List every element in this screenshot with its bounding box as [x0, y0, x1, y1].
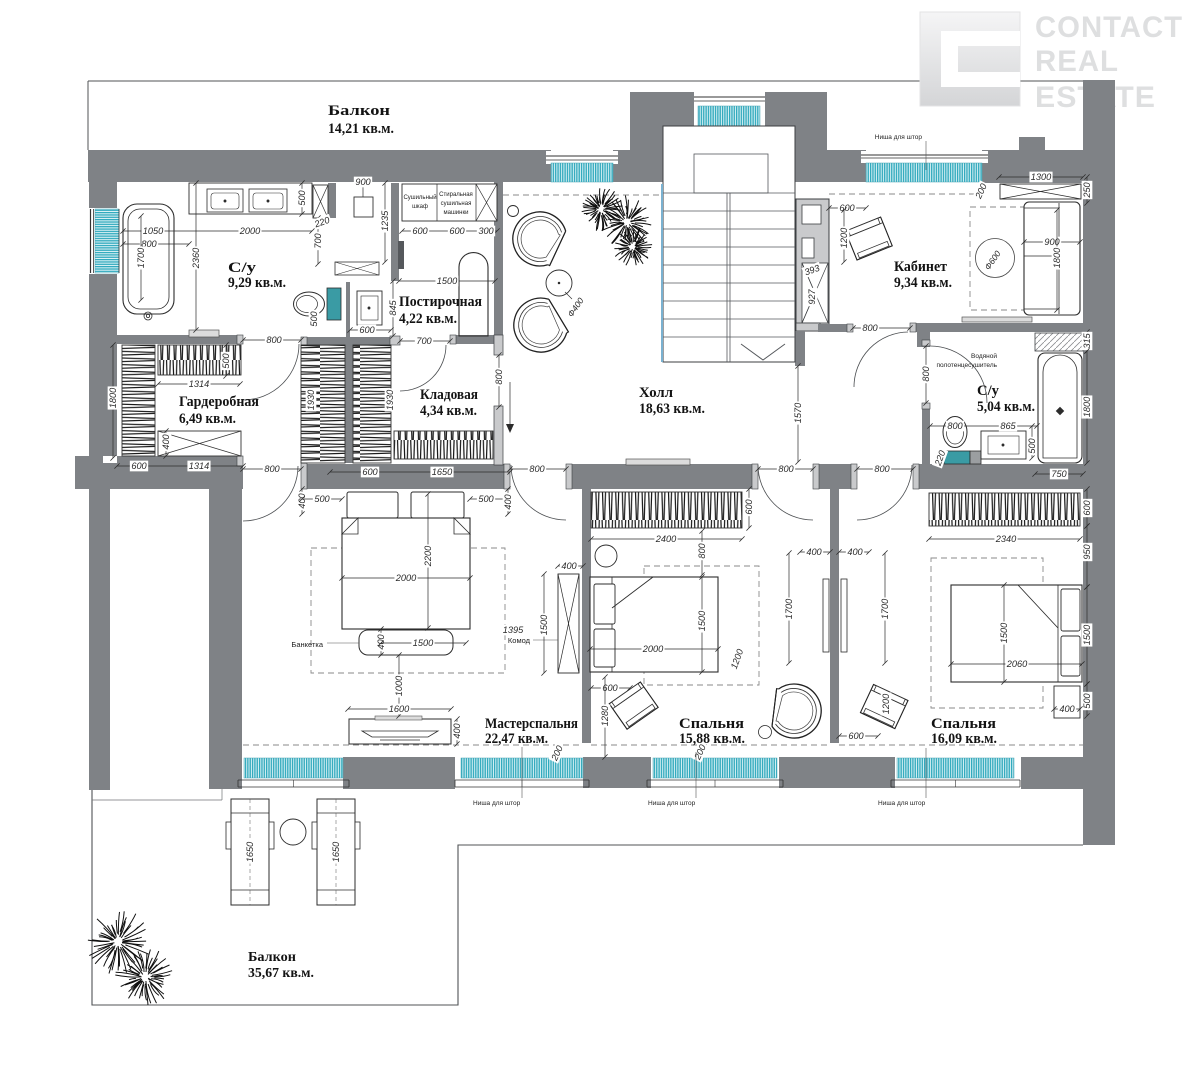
svg-text:5,04 кв.м.: 5,04 кв.м. [977, 399, 1035, 415]
svg-text:1200: 1200 [729, 647, 746, 670]
svg-text:800: 800 [529, 464, 545, 474]
svg-text:2400: 2400 [655, 534, 677, 544]
svg-text:1800: 1800 [108, 387, 118, 408]
svg-text:1200: 1200 [839, 227, 849, 248]
svg-text:1700: 1700 [784, 598, 794, 619]
svg-text:14,21 кв.м.: 14,21 кв.м. [328, 121, 394, 137]
svg-text:500: 500 [1082, 692, 1092, 708]
svg-text:400: 400 [161, 433, 171, 449]
svg-text:2000: 2000 [395, 573, 417, 583]
svg-text:800: 800 [697, 542, 707, 558]
svg-text:800: 800 [874, 464, 890, 474]
svg-text:800: 800 [494, 368, 504, 384]
svg-text:CONTACT: CONTACT [1035, 11, 1183, 44]
svg-text:Кабинет: Кабинет [894, 259, 948, 275]
svg-text:Ниша для штор: Ниша для штор [878, 800, 926, 807]
svg-text:Ф400: Ф400 [565, 296, 585, 319]
svg-text:1700: 1700 [880, 598, 890, 619]
svg-text:400: 400 [847, 547, 863, 557]
svg-text:1500: 1500 [437, 276, 458, 286]
svg-text:Сушильный: Сушильный [403, 194, 436, 201]
svg-text:REAL: REAL [1035, 45, 1119, 78]
svg-text:1700: 1700 [136, 247, 146, 268]
svg-text:1570: 1570 [793, 402, 803, 423]
svg-text:600: 600 [362, 467, 378, 477]
svg-text:Банкетка: Банкетка [291, 640, 323, 649]
svg-text:900: 900 [1044, 237, 1060, 247]
svg-text:С/у: С/у [977, 383, 999, 399]
svg-text:машинки: машинки [444, 210, 469, 216]
svg-text:600: 600 [359, 325, 375, 335]
svg-text:400: 400 [376, 633, 386, 649]
svg-text:1500: 1500 [999, 622, 1009, 643]
svg-text:600: 600 [744, 498, 754, 514]
svg-text:18,63 кв.м.: 18,63 кв.м. [639, 401, 705, 417]
svg-text:750: 750 [1051, 469, 1067, 479]
svg-text:Стиральная: Стиральная [439, 192, 473, 198]
svg-text:Водяной: Водяной [971, 352, 997, 360]
svg-text:Комод: Комод [508, 636, 531, 645]
svg-text:Балкон: Балкон [248, 950, 296, 965]
svg-text:600: 600 [412, 226, 428, 236]
svg-text:950: 950 [1082, 543, 1092, 559]
svg-text:С/у: С/у [228, 260, 257, 276]
svg-text:600: 600 [848, 731, 864, 741]
svg-text:Спальня: Спальня [679, 716, 744, 732]
svg-text:400: 400 [452, 722, 462, 738]
svg-text:800: 800 [778, 464, 794, 474]
svg-text:1800: 1800 [1052, 247, 1062, 268]
svg-text:4,22 кв.м.: 4,22 кв.м. [399, 311, 457, 327]
svg-text:Ф600: Ф600 [982, 249, 1002, 272]
svg-text:4,34 кв.м.: 4,34 кв.м. [420, 403, 477, 419]
svg-text:1500: 1500 [413, 638, 434, 648]
svg-text:400: 400 [561, 561, 577, 571]
svg-text:Гардеробная: Гардеробная [179, 394, 259, 410]
svg-text:1650: 1650 [245, 841, 255, 862]
svg-text:400: 400 [806, 547, 822, 557]
svg-text:9,29 кв.м.: 9,29 кв.м. [228, 275, 286, 291]
svg-text:1930: 1930 [306, 389, 316, 410]
svg-text:Холл: Холл [639, 385, 674, 401]
svg-text:600: 600 [839, 203, 855, 213]
svg-text:800: 800 [264, 464, 280, 474]
svg-text:2000: 2000 [239, 226, 261, 236]
svg-text:2340: 2340 [995, 534, 1017, 544]
svg-text:35,67 кв.м.: 35,67 кв.м. [248, 966, 314, 981]
svg-text:Кладовая: Кладовая [420, 387, 478, 403]
svg-text:900: 900 [355, 177, 371, 187]
svg-text:1200: 1200 [881, 693, 891, 714]
svg-text:1050: 1050 [143, 226, 164, 236]
svg-text:9,34 кв.м.: 9,34 кв.м. [894, 275, 952, 291]
svg-text:1000: 1000 [394, 675, 404, 696]
svg-text:1650: 1650 [331, 841, 341, 862]
svg-text:1800: 1800 [1082, 396, 1092, 417]
svg-text:500: 500 [309, 310, 319, 326]
svg-text:15,88 кв.м.: 15,88 кв.м. [679, 731, 745, 747]
svg-text:1930: 1930 [385, 389, 395, 410]
svg-text:1500: 1500 [697, 610, 707, 631]
svg-text:22,47 кв.м.: 22,47 кв.м. [485, 731, 548, 747]
svg-text:Ниша для штор: Ниша для штор [875, 134, 923, 141]
svg-text:Ниша для штор: Ниша для штор [648, 800, 696, 807]
svg-text:315: 315 [1082, 332, 1092, 348]
svg-text:700: 700 [416, 336, 432, 346]
svg-text:600: 600 [1082, 499, 1092, 515]
svg-text:600: 600 [449, 226, 465, 236]
svg-text:1280: 1280 [600, 705, 610, 726]
svg-text:800: 800 [921, 365, 931, 381]
svg-text:250: 250 [1082, 181, 1092, 198]
svg-text:500: 500 [314, 494, 330, 504]
svg-text:1235: 1235 [380, 210, 390, 231]
svg-text:6,49 кв.м.: 6,49 кв.м. [179, 411, 236, 427]
svg-text:Мастерспальня: Мастерспальня [485, 716, 578, 732]
svg-text:700: 700 [313, 232, 323, 248]
svg-text:Ниша для штор: Ниша для штор [473, 800, 521, 807]
svg-text:800: 800 [862, 323, 878, 333]
svg-text:927: 927 [807, 288, 817, 304]
svg-text:500: 500 [1027, 437, 1037, 453]
svg-text:1395: 1395 [503, 625, 524, 635]
svg-text:16,09 кв.м.: 16,09 кв.м. [931, 731, 997, 747]
svg-text:600: 600 [131, 461, 147, 471]
svg-text:300: 300 [478, 226, 494, 236]
svg-text:800: 800 [266, 335, 282, 345]
svg-text:полотенцесушитель: полотенцесушитель [936, 362, 997, 369]
svg-text:1314: 1314 [189, 461, 209, 471]
svg-text:2360: 2360 [191, 247, 201, 269]
svg-text:845: 845 [388, 299, 398, 315]
svg-text:Спальня: Спальня [931, 716, 996, 732]
svg-text:400: 400 [503, 493, 513, 509]
svg-text:1600: 1600 [389, 704, 410, 714]
svg-text:Постирочная: Постирочная [399, 294, 482, 310]
svg-text:1500: 1500 [539, 614, 549, 635]
svg-text:2000: 2000 [642, 644, 664, 654]
svg-text:1500: 1500 [1082, 624, 1092, 645]
svg-text:Балкон: Балкон [328, 103, 390, 119]
svg-text:500: 500 [478, 494, 494, 504]
svg-text:1314: 1314 [189, 379, 209, 389]
svg-text:800: 800 [947, 421, 963, 431]
svg-text:500: 500 [221, 352, 231, 368]
svg-text:400: 400 [1059, 704, 1075, 714]
svg-text:500: 500 [297, 189, 307, 205]
svg-text:1650: 1650 [432, 467, 453, 477]
svg-text:2060: 2060 [1006, 659, 1028, 669]
svg-text:1300: 1300 [1031, 172, 1052, 182]
svg-text:400: 400 [297, 492, 307, 508]
svg-text:2200: 2200 [423, 545, 433, 567]
svg-text:шкаф: шкаф [412, 204, 428, 210]
svg-text:сушильная: сушильная [441, 201, 472, 207]
svg-text:865: 865 [1000, 421, 1016, 431]
